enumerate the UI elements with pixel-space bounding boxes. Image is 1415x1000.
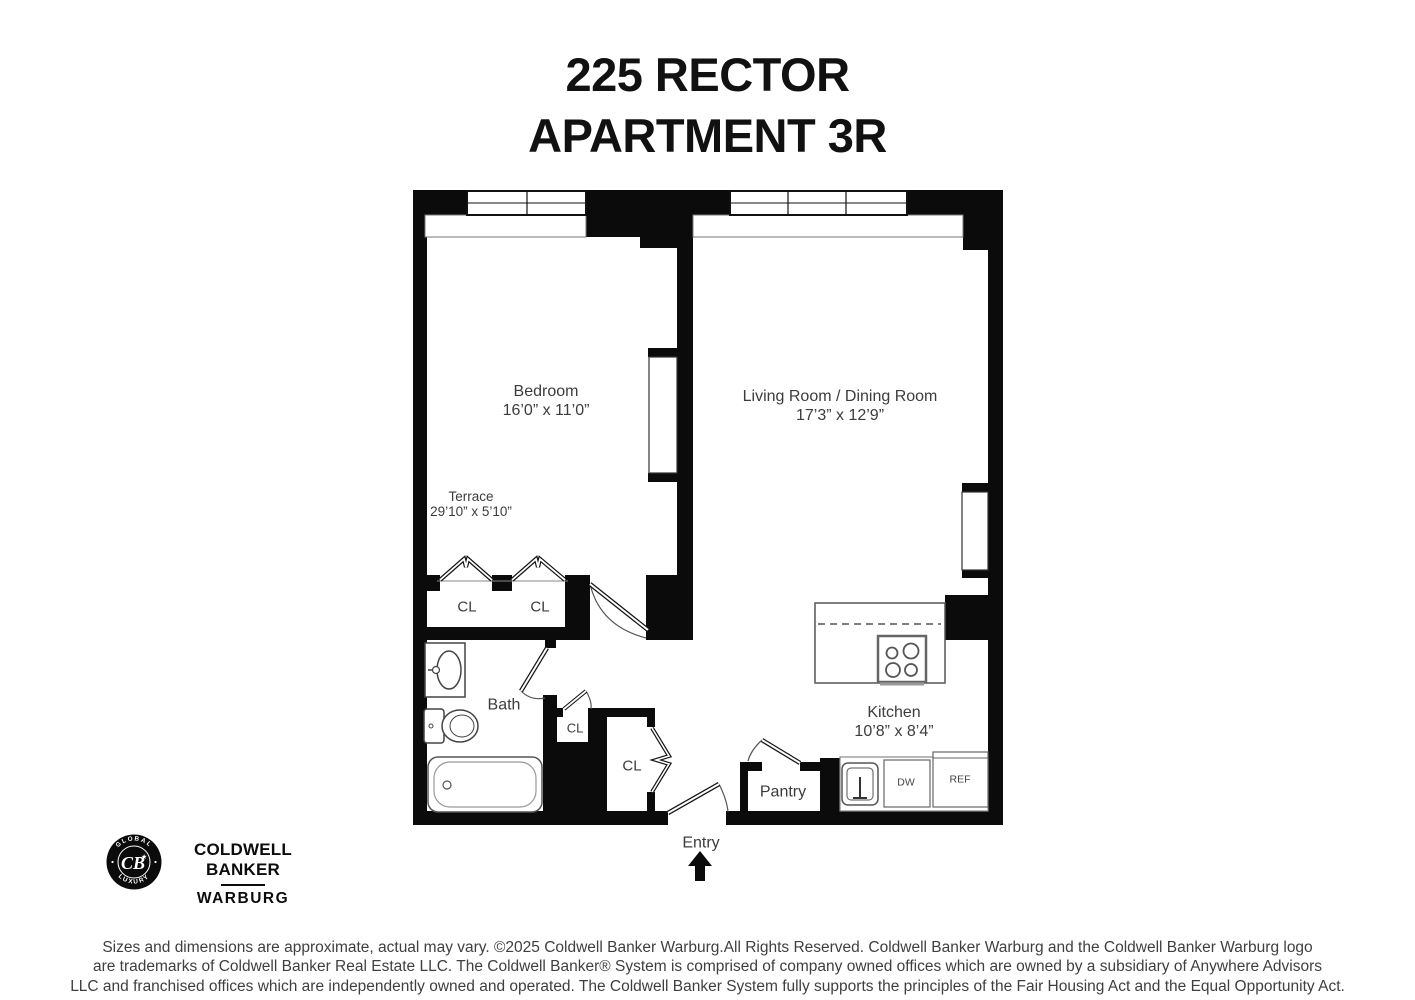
brand-lockup: COLDWELL BANKER WARBURG — [168, 840, 318, 908]
wall-largecl-jamb-top — [647, 717, 655, 727]
tub-drain — [443, 781, 451, 789]
seal-dot-left — [111, 861, 113, 863]
terrace-name: Terrace — [430, 489, 512, 504]
global-luxury-seal: GLOBAL LUXURY CB ★ — [103, 831, 165, 893]
livingroom-sill — [693, 215, 963, 237]
closet-label-small: CL — [567, 719, 584, 738]
bifold-door-1 — [440, 559, 492, 580]
kitchen-sink — [842, 763, 878, 805]
bedroom-door — [590, 584, 648, 638]
wall-pantry-top-left — [740, 762, 762, 771]
dishwasher-label: DW — [897, 774, 915, 793]
wall-divider — [677, 237, 693, 575]
wall-smallcl-jamb — [553, 708, 563, 717]
seal-star-icon: ★ — [141, 853, 147, 861]
wall-rightniche-top-bar — [962, 483, 988, 492]
bath-label: Bath — [488, 696, 521, 715]
entry-arrow-icon — [688, 851, 712, 881]
brand-subname: WARBURG — [168, 890, 318, 908]
wall-bottom-right — [726, 811, 1003, 825]
closet-label-large: CL — [622, 757, 641, 776]
wall-bottom-left — [413, 811, 668, 825]
refrigerator-label: REF — [950, 771, 971, 790]
wall-bathdoor-jamb — [545, 640, 556, 648]
bathtub — [428, 757, 542, 812]
livingroom-name: Living Room / Dining Room — [743, 387, 938, 406]
bath-door — [521, 648, 547, 699]
wall-divider-bottom-block — [646, 575, 693, 640]
toilet — [424, 709, 478, 743]
livingroom-label: Living Room / Dining Room 17’3” x 12’9” — [743, 387, 938, 425]
closet-label-1: CL — [457, 598, 476, 617]
terrace-label: Terrace 29’10” x 5’10” — [430, 489, 512, 519]
livingroom-niche — [962, 492, 988, 570]
wall-rightniche-bottom-bar — [962, 570, 988, 578]
wall-smallcl-right — [588, 708, 598, 746]
smallcl-door — [564, 691, 591, 709]
terrace-dims: 29’10” x 5’10” — [430, 504, 512, 519]
wall-niche-bottom-bar — [648, 473, 693, 482]
bedroom-window — [467, 191, 586, 215]
window-sills — [425, 215, 963, 237]
legal-disclaimer: Sizes and dimensions are approximate, ac… — [0, 938, 1415, 996]
wall-largecl-left — [598, 717, 607, 811]
livingroom-dims: 17’3” x 12’9” — [743, 406, 938, 425]
kitchen-label: Kitchen 10’8” x 8’4” — [854, 703, 933, 741]
entry-door — [668, 784, 728, 813]
wall-largecl-jamb-bottom — [647, 792, 655, 800]
seal-dot-right — [154, 861, 156, 863]
brand-rule — [221, 884, 265, 886]
kitchen-name: Kitchen — [854, 703, 933, 722]
pantry-door — [748, 740, 800, 763]
kitchen-dims: 10’8” x 8’4” — [854, 722, 933, 741]
bedroom-label: Bedroom 16’0” x 11’0” — [503, 382, 590, 420]
bedroom-sill — [425, 215, 586, 237]
bedroom-name: Bedroom — [503, 382, 590, 401]
bath-sink — [425, 643, 465, 697]
wall-largecl-right-bottom — [647, 800, 655, 811]
disclaimer-line-3: LLC and franchised offices which are ind… — [0, 977, 1415, 996]
bedroom-dims: 16’0” x 11’0” — [503, 401, 590, 420]
bedroom-niche — [649, 357, 677, 473]
floorplan-page: 225 RECTOR APARTMENT 3R — [0, 0, 1415, 1000]
wall-pantry-top-right — [800, 762, 822, 771]
disclaimer-line-1: Sizes and dimensions are approximate, ac… — [0, 938, 1415, 957]
stove — [878, 636, 926, 684]
wall-closet-jamb-left — [427, 575, 440, 591]
disclaimer-line-2: are trademarks of Coldwell Banker Real E… — [0, 957, 1415, 976]
wall-closet-jamb-mid — [492, 575, 512, 591]
closet-label-2: CL — [530, 598, 549, 617]
accordion-door-largecl — [652, 728, 669, 792]
wall-bath-top — [413, 627, 590, 640]
brand-name: COLDWELL BANKER — [168, 840, 318, 880]
wall-corner-ne — [963, 237, 1003, 250]
wall-niche-top-bar — [648, 348, 693, 357]
wall-mass-below-smallcl — [552, 742, 598, 811]
entry-label: Entry — [682, 834, 719, 853]
livingroom-window — [730, 191, 907, 215]
wall-largecl-top — [598, 708, 655, 717]
wall-kitchen-column — [945, 595, 988, 640]
wall-pantry-kitchen-divider — [820, 758, 840, 811]
bifold-door-2 — [512, 559, 565, 580]
wall-right — [988, 190, 1003, 825]
pantry-label: Pantry — [760, 783, 806, 802]
